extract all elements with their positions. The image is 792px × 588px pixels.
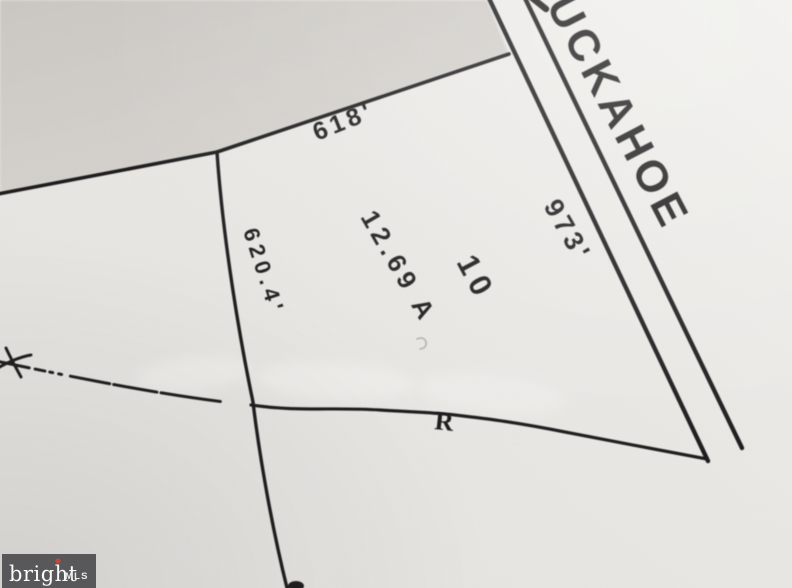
star-icon xyxy=(55,558,60,563)
paper-grain xyxy=(0,0,792,588)
watermark-mls: MLS xyxy=(65,571,89,582)
brightmls-watermark: bright MLS xyxy=(2,554,96,588)
plat-map-photo: UCKAHOE 973' 618' 620.4' 12.69 A 10 R br… xyxy=(0,0,792,588)
plat-map-scan: UCKAHOE 973' 618' 620.4' 12.69 A 10 R br… xyxy=(0,0,792,588)
